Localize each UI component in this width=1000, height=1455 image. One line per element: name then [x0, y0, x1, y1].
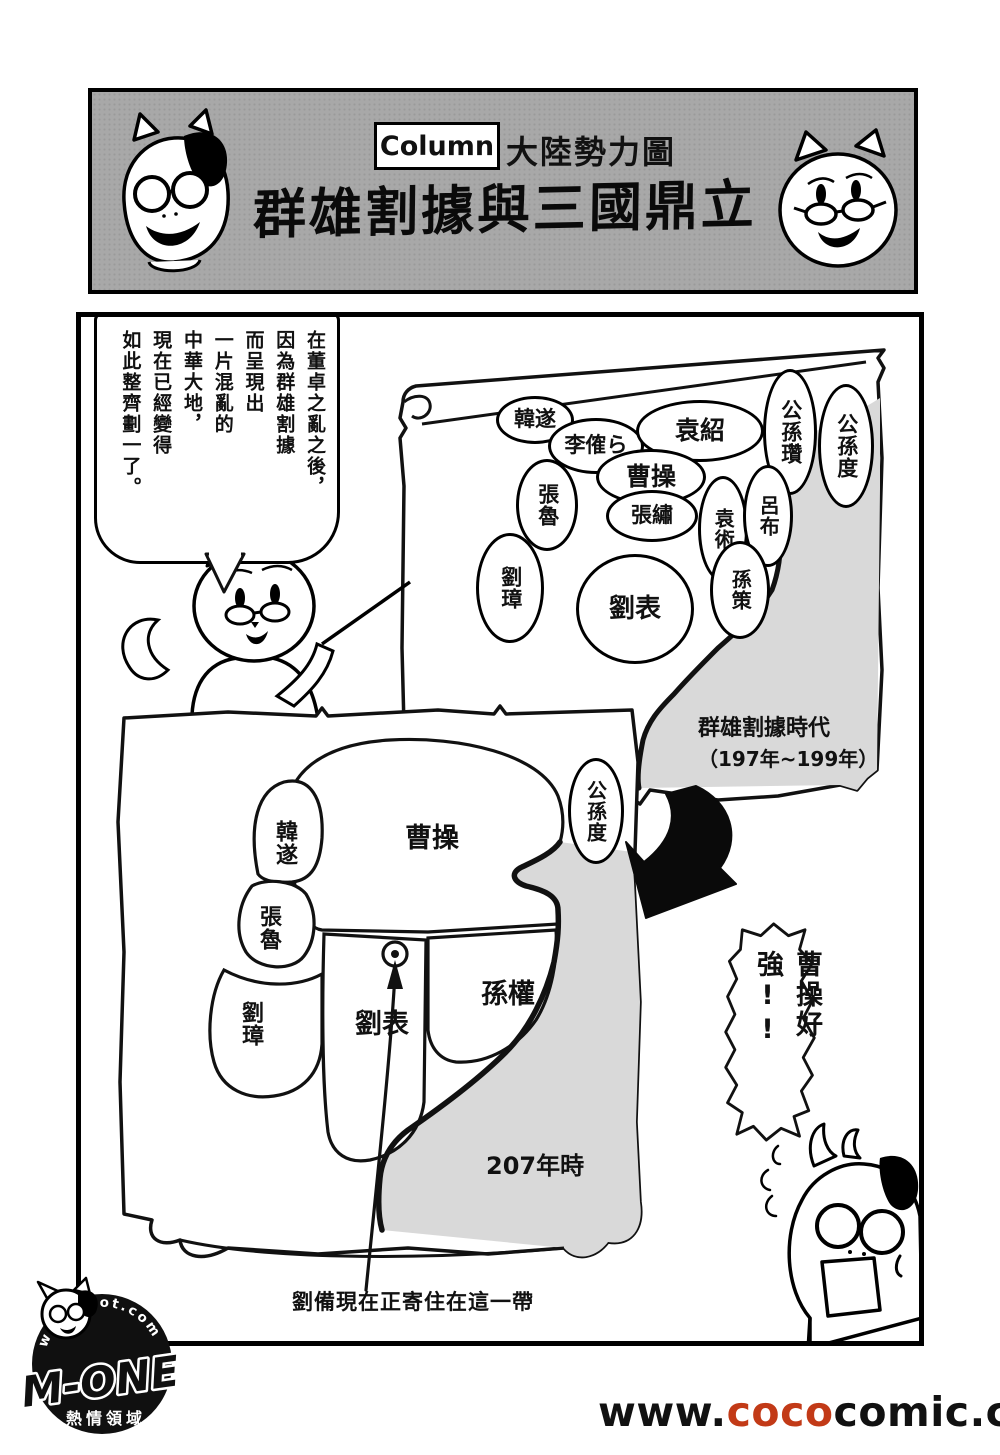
liubei-pointer-arrowhead	[387, 960, 403, 989]
logo-tagline: 熱情領域	[66, 1409, 146, 1428]
liubei-pointer-arrow	[366, 974, 395, 1290]
overlay-lines	[0, 0, 1000, 1455]
comic-page: Column 大陸勢力圖 群雄割據與三國鼎立 在董卓之亂之後， 因為群雄割據 而…	[0, 0, 1000, 1455]
publisher-logo: w.jojohot.com M-ONE 熱情領域	[14, 1272, 190, 1448]
speech-bubble-tail	[206, 554, 244, 592]
